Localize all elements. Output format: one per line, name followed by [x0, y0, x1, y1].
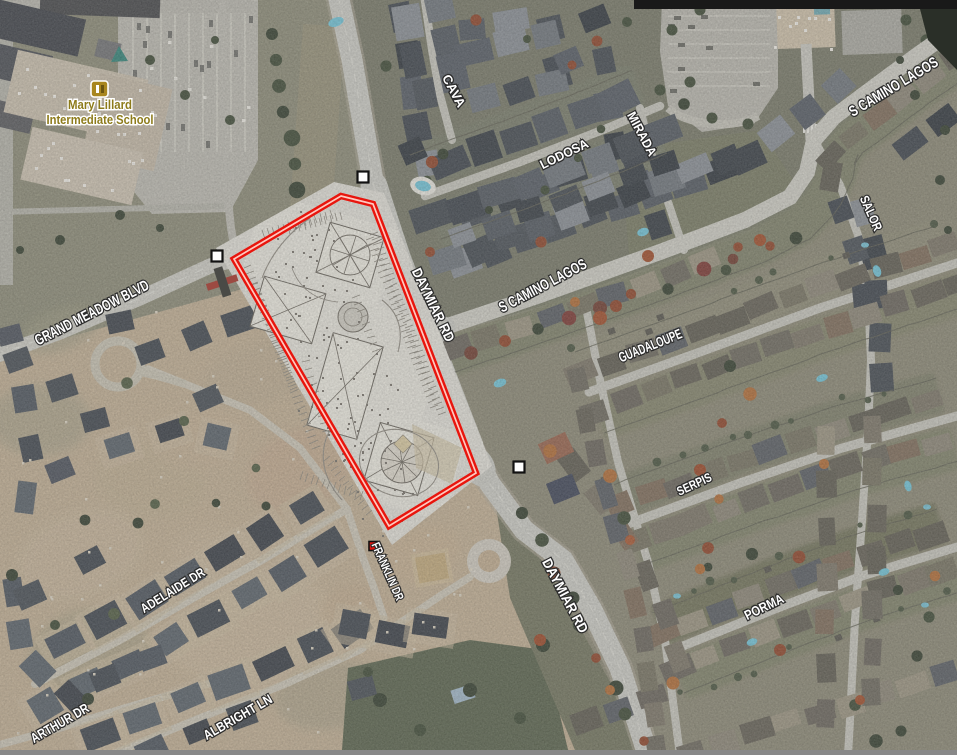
svg-text:Mary Lillard: Mary Lillard [68, 98, 132, 112]
svg-text:Intermediate School: Intermediate School [47, 113, 154, 127]
